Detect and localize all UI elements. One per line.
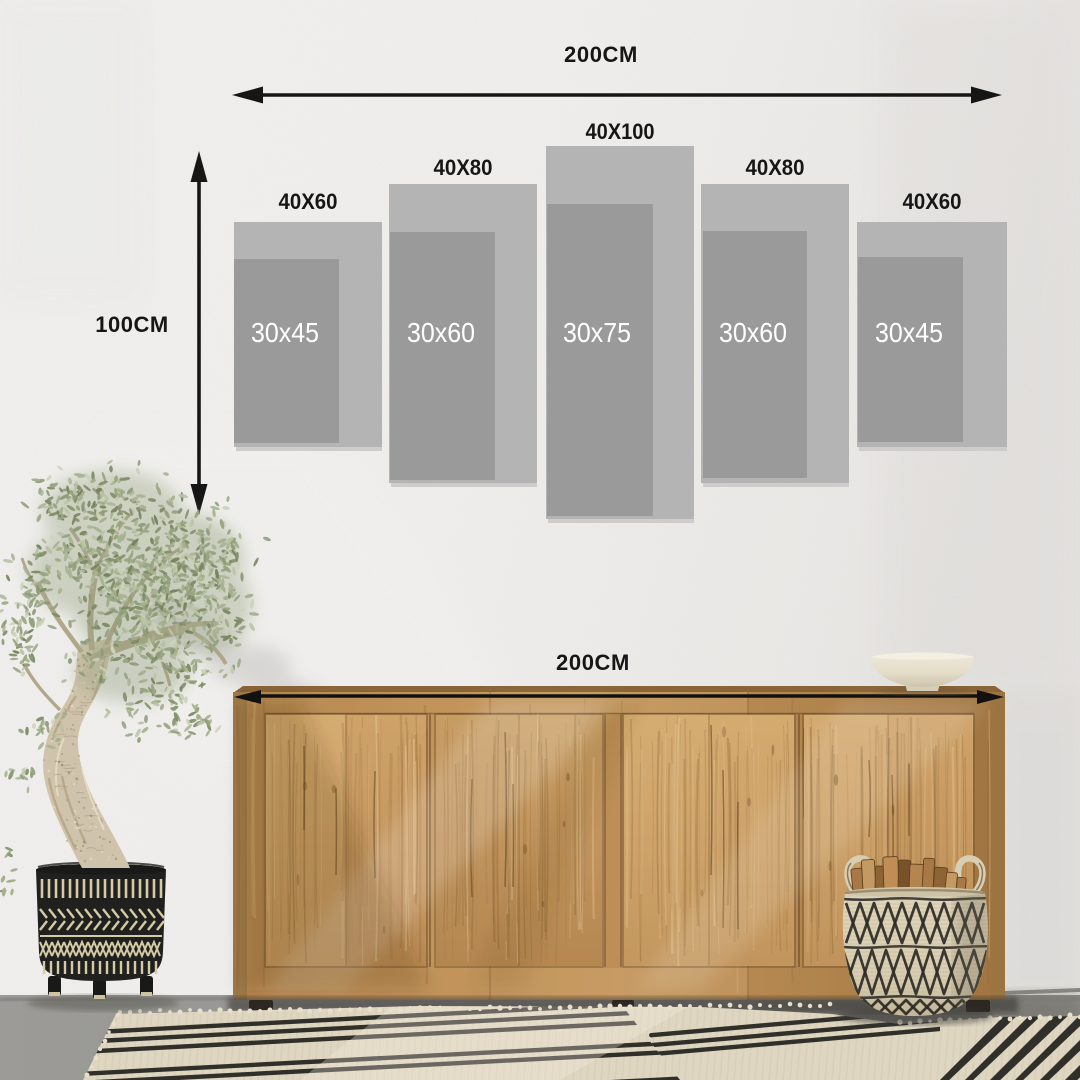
svg-text:30x45: 30x45 (875, 317, 943, 348)
svg-text:40X60: 40X60 (903, 189, 962, 214)
svg-text:100CM: 100CM (95, 312, 168, 337)
svg-text:40X80: 40X80 (434, 155, 493, 180)
svg-text:30x60: 30x60 (407, 317, 475, 348)
svg-text:30x60: 30x60 (719, 317, 787, 348)
svg-text:30x45: 30x45 (251, 317, 319, 348)
svg-text:30x75: 30x75 (563, 317, 631, 348)
svg-text:40X100: 40X100 (586, 119, 655, 144)
svg-text:200CM: 200CM (564, 42, 638, 67)
svg-text:40X80: 40X80 (746, 155, 805, 180)
svg-text:200CM: 200CM (556, 650, 630, 675)
svg-text:40X60: 40X60 (279, 189, 338, 214)
